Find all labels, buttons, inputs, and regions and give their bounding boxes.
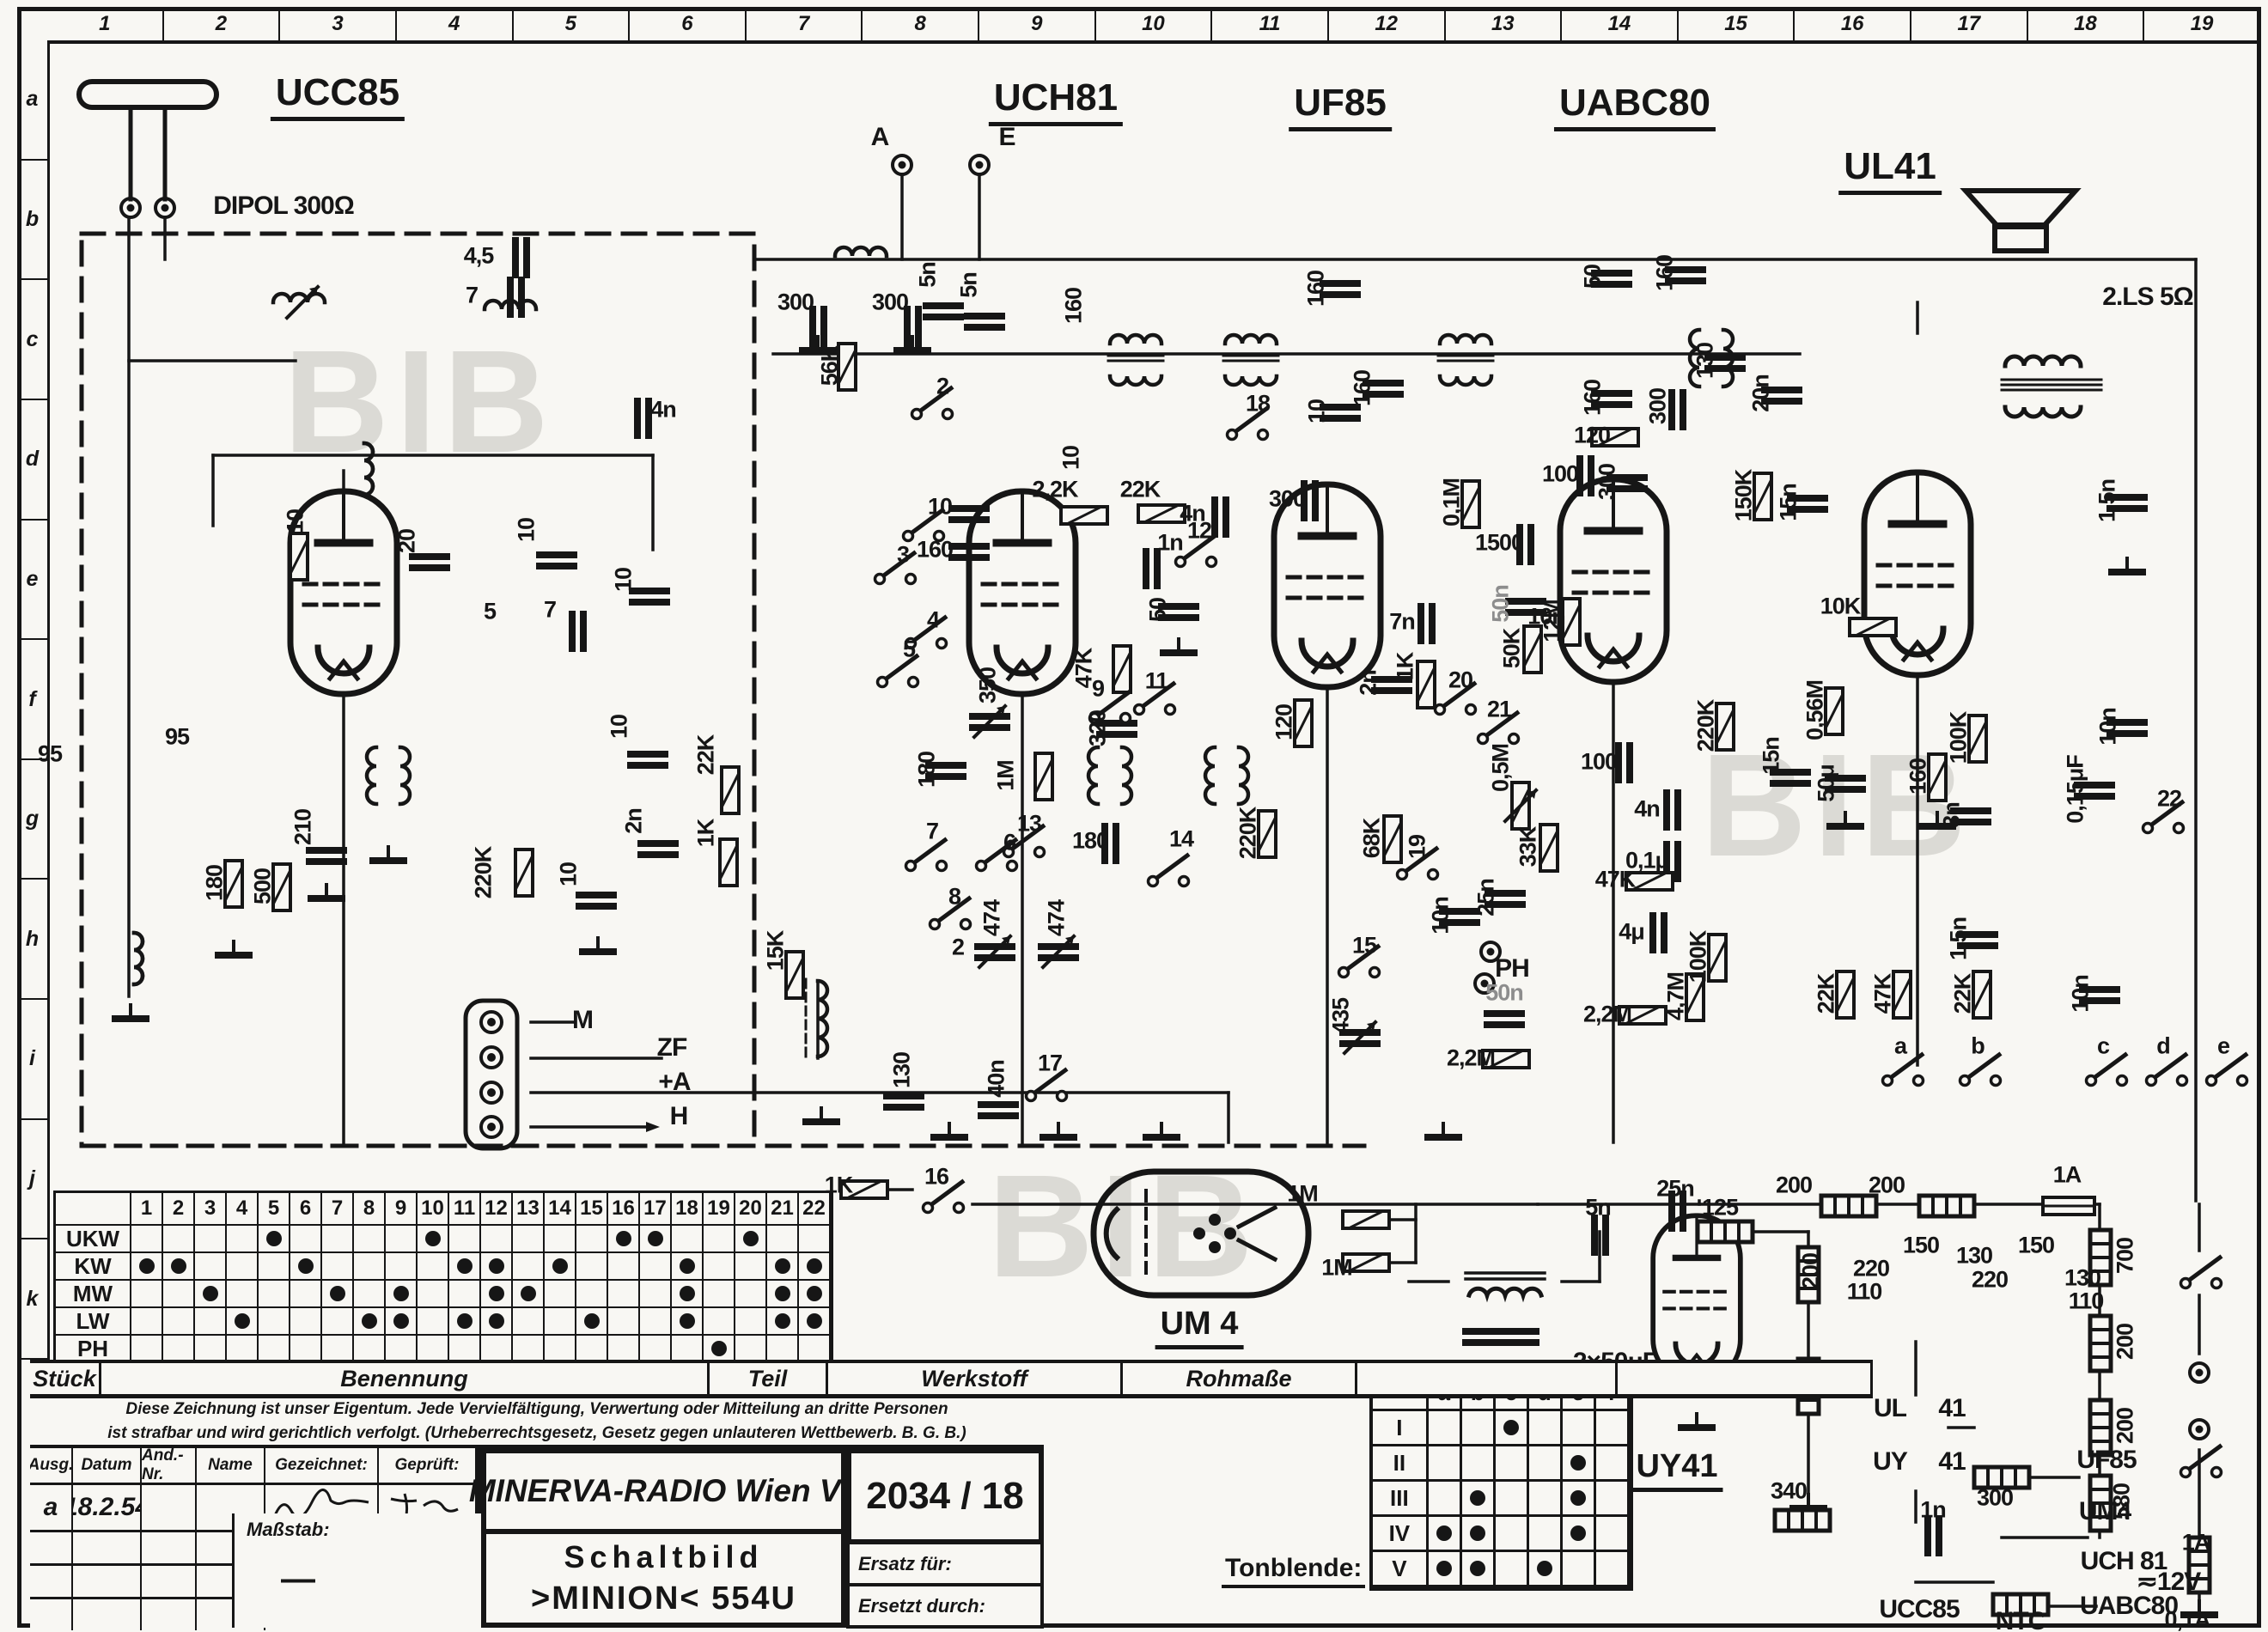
band-cell-UKW-20 (735, 1226, 767, 1253)
component-value-label: 68K (1361, 819, 1384, 859)
copyright-notice: Diese Zeichnung ist unser Eigentum. Jede… (30, 1398, 1044, 1448)
band-col-1: 1 (131, 1193, 163, 1226)
capacitor-icon (1498, 1328, 1539, 1346)
resistor-icon (1837, 971, 1854, 1018)
band-cell-KW-19 (704, 1253, 735, 1281)
tonblende-cell-V-e (1563, 1552, 1596, 1587)
tonblende-row-V: V (1373, 1552, 1630, 1587)
schematic-sheet: 12345678910111213141516171819 abcdefghij… (0, 0, 2268, 1632)
capacitor-icon (512, 237, 530, 278)
component-value-label: 340 (1771, 1480, 1807, 1503)
band-cell-KW-2 (163, 1253, 195, 1281)
band-cell-KW-5 (259, 1253, 290, 1281)
resistor-icon (1698, 1221, 1753, 1242)
tonblende-cell-IV-b (1462, 1517, 1496, 1552)
band-cell-MW-1 (131, 1281, 163, 1308)
band-col-17: 17 (640, 1193, 672, 1226)
contact-dot (807, 1313, 822, 1329)
rev-date: 18.2.54 (73, 1485, 142, 1530)
component-value-label: 100 (1581, 751, 1617, 774)
tonblende-row-IV: IV (1373, 1517, 1630, 1552)
ground-icon (934, 1124, 965, 1137)
component-value-label: 7n (1389, 611, 1415, 634)
capacitor-icon (1211, 496, 1229, 538)
tonblende-cell-I-a (1429, 1411, 1462, 1446)
band-cell-LW-13 (513, 1308, 545, 1336)
band-cell-MW-16 (608, 1281, 640, 1308)
band-cell-UKW-11 (449, 1226, 481, 1253)
band-col-7: 7 (322, 1193, 354, 1226)
band-cell-KW-21 (767, 1253, 799, 1281)
capacitor-icon (1615, 742, 1633, 783)
capacitor-icon (978, 1101, 1019, 1119)
component-value-label: 110 (1847, 1281, 1882, 1304)
band-cell-MW-19 (704, 1281, 735, 1308)
band-col-10: 10 (418, 1193, 449, 1226)
component-value-label: 120 (1574, 424, 1610, 448)
tonblende-cell-I-c (1496, 1411, 1529, 1446)
component-value-label: 20 (1448, 669, 1472, 692)
rev-aend-value (142, 1485, 197, 1530)
resistor-icon (1919, 1196, 1974, 1216)
component-value-label: 56K (819, 346, 842, 387)
component-value-label: 180 (204, 865, 227, 901)
resistor-icon (1850, 618, 1896, 636)
contact-dot (1470, 1525, 1485, 1541)
switch-icon (906, 840, 947, 871)
component-value-label: 50μ (1815, 764, 1838, 802)
component-value-label: 47K (1595, 868, 1636, 892)
ground-icon (115, 1005, 146, 1019)
component-value-label: 200 (1869, 1174, 1905, 1197)
band-col-13: 13 (513, 1193, 545, 1226)
band-cell-MW-4 (227, 1281, 259, 1308)
tonblende-table: Tonblende: abcdefIIIIIIIVV (1161, 1373, 1633, 1595)
component-value-label: 300 (1596, 464, 1619, 500)
switch-icon (1883, 1055, 1924, 1086)
resistor-icon (1061, 507, 1107, 524)
component-value-label: 300 (1977, 1487, 2013, 1510)
contact-dot (680, 1313, 695, 1329)
component-value-label: 10K (1820, 595, 1861, 618)
band-cell-LW-15 (576, 1308, 608, 1336)
contact-dot (584, 1313, 600, 1329)
contact-dot (489, 1258, 504, 1274)
component-value-label: UY (1873, 1449, 1907, 1475)
header-werkstoff: Werkstoff (828, 1363, 1123, 1394)
parts-list-header: Stück Benennung Teil Werkstoff Rohmaße (30, 1360, 1873, 1398)
capacitor-icon (1663, 789, 1681, 831)
contact-dot (171, 1258, 186, 1274)
contact-dot (203, 1286, 218, 1301)
ersatz-box: Ersatz für: (846, 1544, 1044, 1586)
terminal-icon (970, 155, 989, 174)
tonblende-cell-II-f (1596, 1446, 1630, 1482)
vacuum-tube-icon (1274, 484, 1381, 687)
component-value-label: 1K (695, 819, 718, 848)
component-value-label: 95 (38, 743, 62, 766)
component-value-label: d (2156, 1035, 2170, 1058)
component-value-label: 25n (1656, 1178, 1694, 1201)
ground-icon (1043, 1124, 1074, 1137)
vacuum-tube-icon (1560, 479, 1667, 682)
band-cell-UKW-10 (418, 1226, 449, 1253)
component-value-label: 25n (1475, 879, 1498, 916)
contact-dot (521, 1286, 536, 1301)
band-cell-LW-6 (290, 1308, 322, 1336)
component-value-label: PH (1495, 956, 1529, 982)
component-value-label: 160 (1063, 288, 1086, 324)
contact-dot (266, 1231, 282, 1246)
contact-dot (552, 1258, 568, 1274)
component-value-label: 15K (765, 931, 788, 971)
contact-dot (330, 1286, 345, 1301)
component-value-label: 15n (1777, 484, 1801, 521)
component-value-label: 11 (1145, 670, 1168, 693)
component-value-label: 474 (1046, 900, 1069, 936)
switch-icon (2147, 1055, 2187, 1086)
resistor-icon (1826, 688, 1843, 734)
capacitor-icon (306, 847, 347, 865)
band-cell-UKW-17 (640, 1226, 672, 1253)
component-value-label: 1n (1920, 1499, 1946, 1522)
band-cell-LW-14 (545, 1308, 576, 1336)
band-col-18: 18 (672, 1193, 704, 1226)
component-value-label: 8 (948, 886, 960, 909)
band-cell-KW-16 (608, 1253, 640, 1281)
component-value-label: 300 (1269, 488, 1305, 511)
component-value-label: 1K (1394, 653, 1417, 681)
tube-heading-uabc80: UABC80 (1554, 84, 1716, 131)
tonblende-row-I: I (1373, 1411, 1630, 1446)
capacitor-icon (627, 751, 668, 769)
switch-icon (2087, 1055, 2127, 1086)
vacuum-tube-icon (1864, 472, 1971, 675)
tonblende-cell-III-c (1496, 1482, 1529, 1517)
component-value-label: 160 (1582, 380, 1605, 416)
band-col-15: 15 (576, 1193, 608, 1226)
band-cell-KW-8 (354, 1253, 386, 1281)
component-value-label: 10 (515, 518, 539, 542)
component-value-label: e (2217, 1035, 2229, 1058)
component-value-label: UF85 (2076, 1447, 2136, 1473)
band-cell-MW-10 (418, 1281, 449, 1308)
header-rohmasse: Rohmaße (1123, 1363, 1357, 1394)
tube-heading-um4: UM 4 (1155, 1307, 1244, 1349)
component-value-label: M (572, 1008, 593, 1033)
resistor-icon (1969, 716, 1986, 762)
component-value-label: 3n (1941, 802, 1964, 828)
band-cell-KW-17 (640, 1253, 672, 1281)
band-switch-table: 12345678910111213141516171819202122UKWKW… (53, 1191, 833, 1366)
ground-icon (1146, 1124, 1177, 1137)
band-cell-LW-1 (131, 1308, 163, 1336)
band-cell-LW-3 (195, 1308, 227, 1336)
component-value-label: 700 (2114, 1238, 2137, 1274)
component-value-label: 4,5 (464, 245, 494, 268)
contact-dot (1470, 1561, 1485, 1576)
component-value-label: 10 (613, 568, 636, 592)
band-cell-KW-3 (195, 1253, 227, 1281)
component-value-label: 1,5n (2096, 479, 2119, 522)
component-value-label: 16 (924, 1166, 948, 1189)
band-cell-MW-14 (545, 1281, 576, 1308)
band-cell-UKW-7 (322, 1226, 354, 1253)
band-cell-UKW-15 (576, 1226, 608, 1253)
band-cell-MW-2 (163, 1281, 195, 1308)
component-value-label: 9 (1092, 678, 1104, 701)
component-value-label: 41 (1938, 1449, 1965, 1475)
band-cell-MW-12 (481, 1281, 513, 1308)
band-cell-MW-20 (735, 1281, 767, 1308)
component-value-label: 150K (1733, 470, 1756, 522)
coil-icon (835, 247, 887, 256)
component-value-label: 50 (1147, 598, 1170, 622)
component-value-label: UABC80 (2080, 1593, 2178, 1619)
band-cell-MW-22 (799, 1281, 831, 1308)
contact-dot (362, 1313, 377, 1329)
component-value-label: 10n (1430, 897, 1453, 935)
component-value-label: 40n (985, 1060, 1009, 1098)
band-cell-KW-12 (481, 1253, 513, 1281)
component-value-label: 5n (958, 272, 981, 298)
ground-icon (806, 1108, 837, 1122)
resistor-icon (1973, 971, 1991, 1018)
component-value-label: a (1894, 1035, 1906, 1058)
contact-dot (711, 1341, 727, 1356)
contact-dot (298, 1258, 314, 1274)
contact-dot (1436, 1561, 1452, 1576)
capacitor-icon (883, 1093, 924, 1111)
capacitor-icon (409, 553, 450, 571)
tonblende-cell-I-b (1462, 1411, 1496, 1446)
band-row-LW: LW (56, 1308, 831, 1336)
component-value-label: A (871, 125, 889, 150)
component-value-label: 7 (926, 820, 938, 843)
tonblende-cell-IV-e (1563, 1517, 1596, 1552)
band-cell-MW-3 (195, 1281, 227, 1308)
resistor-icon (2090, 1316, 2111, 1371)
component-value-label: 5n (1585, 1197, 1611, 1220)
resistor-icon (273, 864, 290, 910)
component-value-label: 22K (1815, 974, 1838, 1014)
ground-icon (2112, 558, 2143, 572)
header-empty-1 (1357, 1363, 1618, 1394)
component-value-label: 300 (872, 291, 908, 314)
resistor-icon (1775, 1510, 1830, 1531)
contact-dot (775, 1313, 790, 1329)
band-cell-MW-21 (767, 1281, 799, 1308)
component-value-label: 41 (1938, 1396, 1965, 1422)
resistor-icon (1929, 754, 1946, 801)
resistor-icon (720, 839, 737, 886)
band-cell-UKW-4 (227, 1226, 259, 1253)
ground-icon (311, 885, 342, 898)
rev-value: a (30, 1485, 73, 1530)
contact-dot (489, 1286, 504, 1301)
contact-dot (1503, 1420, 1519, 1435)
fuse-icon (2043, 1197, 2094, 1215)
component-value-label: 15 (1352, 935, 1376, 958)
component-value-label: 2n (623, 808, 646, 834)
magic-eye-tube-icon (1094, 1172, 1308, 1295)
band-col-14: 14 (545, 1193, 576, 1226)
drawing-number-box: 2034 / 18 (846, 1448, 1044, 1544)
band-cell-MW-18 (672, 1281, 704, 1308)
component-value-label: 4,7M (1665, 972, 1688, 1020)
component-value-label: 18 (1246, 393, 1270, 416)
resistor-icon (1259, 811, 1276, 857)
component-value-label: 3 (897, 544, 909, 567)
component-value-label: 220 (1972, 1269, 2008, 1292)
rev-header-name: Name (197, 1448, 265, 1483)
component-value-label: 200 (1776, 1174, 1812, 1197)
header-benennung: Benennung (101, 1363, 710, 1394)
resistor-icon (722, 767, 739, 813)
component-value-label: +A (658, 1069, 690, 1095)
component-value-label: 320 (1087, 710, 1110, 746)
component-value-label: ZF (657, 1035, 687, 1061)
band-cell-LW-21 (767, 1308, 799, 1336)
band-cell-KW-15 (576, 1253, 608, 1281)
coil-icon (273, 294, 325, 302)
tonblende-cell-I-d (1529, 1411, 1563, 1446)
component-value-label: 125 (1702, 1197, 1738, 1220)
band-cell-KW-20 (735, 1253, 767, 1281)
component-value-label: 17 (1038, 1052, 1062, 1075)
component-value-label: 180 (1072, 830, 1108, 853)
component-value-label: 200 (1800, 1253, 1823, 1289)
rev-header-datum: Datum (73, 1448, 142, 1483)
component-value-label: 160 (917, 539, 953, 562)
band-cell-KW-14 (545, 1253, 576, 1281)
component-value-label: 1,5n (1948, 917, 1971, 960)
tonblende-title: Tonblende: (1222, 1554, 1365, 1588)
tube-heading-uf85: UF85 (1289, 84, 1392, 131)
variable-arrow-icon (979, 936, 1010, 967)
if-transformer-icon (1108, 335, 1163, 385)
if-transformer-icon (1438, 335, 1493, 385)
tonblende-cell-I-e (1563, 1411, 1596, 1446)
band-cell-UKW-18 (672, 1226, 704, 1253)
band-col-5: 5 (259, 1193, 290, 1226)
tonblende-cell-II-a (1429, 1446, 1462, 1482)
resistor-icon (1343, 1211, 1389, 1228)
component-value-label: 10n (2070, 975, 2093, 1013)
contact-dot (775, 1258, 790, 1274)
contact-dot (235, 1313, 250, 1329)
component-value-label: c (2097, 1035, 2109, 1058)
band-row-MW: MW (56, 1281, 831, 1308)
component-value-label: 21 (1487, 698, 1511, 722)
capacitor-icon (948, 505, 990, 523)
tonblende-cell-V-d (1529, 1552, 1563, 1587)
component-value-label: 2.LS 5Ω (2102, 284, 2192, 310)
component-value-label: ≂12V (2137, 1569, 2201, 1595)
header-stueck: Stück (30, 1363, 101, 1394)
capacitor-icon (637, 840, 679, 858)
component-value-label: DIPOL 300Ω (213, 193, 354, 219)
doc-title-line-1: Schaltbild (564, 1539, 763, 1575)
document-title-box: Schaltbild >MINION< 554U (481, 1534, 846, 1628)
component-value-label: 220K (1695, 700, 1718, 752)
band-cell-LW-16 (608, 1308, 640, 1336)
band-col-19: 19 (704, 1193, 735, 1226)
component-value-label: 22 (2157, 788, 2181, 811)
band-col-22: 22 (799, 1193, 831, 1226)
tonblende-cell-II-c (1496, 1446, 1529, 1482)
band-col-8: 8 (354, 1193, 386, 1226)
resistor-icon (225, 861, 242, 907)
tonblende-cell-IV-f (1596, 1517, 1630, 1552)
terminal-icon (893, 155, 911, 174)
coil-pair-icon (1205, 747, 1248, 804)
capacitor-icon (1668, 389, 1686, 430)
component-value-label: 2n (1357, 670, 1381, 696)
component-value-label: 10 (284, 509, 308, 533)
component-value-label: 2,2M (1583, 1003, 1631, 1026)
contact-dot (457, 1313, 472, 1329)
component-value-label: 10 (558, 862, 581, 886)
component-value-label: 10 (608, 715, 631, 739)
band-col-3: 3 (195, 1193, 227, 1226)
band-cell-KW-22 (799, 1253, 831, 1281)
ground-icon (897, 337, 928, 350)
band-col-11: 11 (449, 1193, 481, 1226)
terminal-strip-icon (466, 1001, 517, 1148)
component-value-label: 130 (1956, 1245, 1992, 1268)
component-value-label: 50 (1582, 265, 1605, 289)
component-value-label: b (1971, 1035, 1984, 1058)
band-cell-LW-17 (640, 1308, 672, 1336)
scale-box: Maßstab: — (232, 1513, 481, 1628)
component-value-label: 120 (1273, 704, 1296, 740)
tonblende-cell-III-f (1596, 1482, 1630, 1517)
component-value-label: 160 (1654, 255, 1677, 291)
component-value-label: 100 (1542, 463, 1578, 486)
switch-icon (2207, 1055, 2247, 1086)
filter-choke-icon (1466, 1273, 1545, 1295)
speaker-icon (1966, 191, 2076, 251)
component-value-label: 22K (1120, 478, 1161, 502)
band-cell-KW-9 (386, 1253, 418, 1281)
tonblende-cell-III-e (1563, 1482, 1596, 1517)
component-value-label: 150 (1903, 1234, 1939, 1257)
band-cell-LW-18 (672, 1308, 704, 1336)
capacitor-icon (964, 313, 1005, 331)
tonblende-row-III: III (1373, 1482, 1630, 1517)
component-value-label: 4n (1634, 798, 1660, 821)
ground-icon (218, 941, 249, 955)
resistor-icon (1295, 700, 1312, 746)
tonblende-cell-III-d (1529, 1482, 1563, 1517)
component-value-label: 130 (2064, 1267, 2100, 1290)
component-value-label: 10 (1060, 446, 1083, 470)
component-value-label: 19 (1406, 835, 1430, 859)
contact-dot (139, 1258, 155, 1274)
component-value-label: 7 (544, 599, 556, 622)
header-empty-2 (1618, 1363, 1873, 1394)
component-value-label: 7 (466, 284, 478, 308)
band-cell-LW-11 (449, 1308, 481, 1336)
ground-icon (1681, 1414, 1712, 1428)
component-value-label: 1A (2053, 1164, 2082, 1187)
resistor-icon (1462, 481, 1479, 527)
band-cell-KW-4 (227, 1253, 259, 1281)
resistor-icon (1384, 816, 1401, 862)
contact-dot (457, 1258, 472, 1274)
band-cell-KW-13 (513, 1253, 545, 1281)
